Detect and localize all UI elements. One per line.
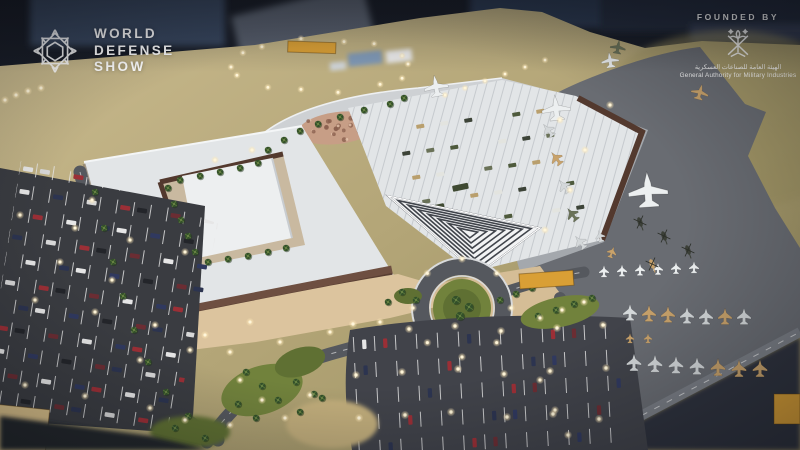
gami-name-english: General Authority for Military Industrie… [678,72,798,79]
wds-word-2: DEFENSE [94,43,175,59]
photo-frame: WORLD DEFENSE SHOW FOUNDED BY الهيئة الع… [0,0,800,450]
wds-wordmark: WORLD DEFENSE SHOW [94,26,175,75]
founded-by-block: FOUNDED BY الهيئة العامة للصناعات العسكر… [678,12,798,79]
world-defense-show-logo: WORLD DEFENSE SHOW [26,22,175,80]
model-label-plaque [519,270,574,289]
model-label-plaque [774,394,800,424]
wds-star-emblem-icon [26,22,84,80]
gami-emblem-icon [720,25,756,61]
south-parking-lot [346,316,648,450]
wds-word-3: SHOW [94,59,175,75]
founded-by-label: FOUNDED BY [678,12,798,22]
wds-word-1: WORLD [94,26,175,42]
model-label-plaque [288,41,336,54]
gami-name-arabic: الهيئة العامة للصناعات العسكرية [678,63,798,71]
